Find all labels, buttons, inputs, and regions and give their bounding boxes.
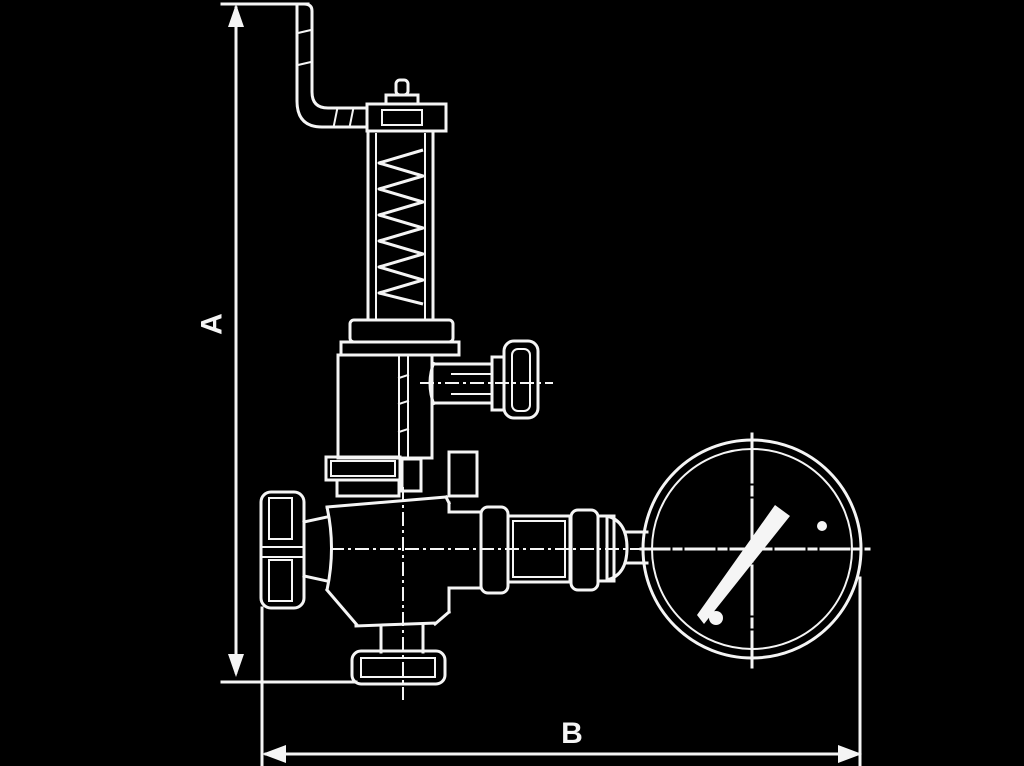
stem-tick — [399, 401, 408, 404]
handwheel-stem-bottom — [304, 576, 327, 581]
packing-flange-inner — [331, 461, 395, 476]
lever-pipe-inner-wall — [304, 4, 368, 108]
gauge-needle — [697, 505, 790, 624]
dim-a-label: A — [196, 313, 229, 335]
pipe-tick — [298, 62, 311, 65]
bonnet — [338, 355, 432, 458]
handwheel-stem-top — [304, 517, 327, 522]
dim-a-arrow-up-icon — [228, 4, 244, 27]
inlet-handwheel — [261, 492, 327, 608]
adjusting-cap — [367, 80, 446, 131]
bottom-drain-cap-inner — [361, 658, 435, 677]
stem-tick — [399, 429, 408, 432]
body-bottom-right-slope — [435, 612, 449, 624]
adjusting-cap-block — [367, 104, 446, 131]
adjusting-cap-slot — [382, 110, 422, 125]
gland-nut — [402, 459, 421, 491]
body-top-edge — [327, 497, 446, 507]
side-test-port — [420, 341, 553, 418]
dim-b-arrow-right-icon — [838, 745, 862, 763]
pressure-gauge — [641, 434, 869, 667]
dim-b-label: B — [561, 717, 583, 750]
pipe-tick — [334, 110, 337, 125]
packing-step — [337, 480, 399, 496]
adjusting-screw-tip — [396, 80, 408, 95]
housing-bottom-flange — [350, 320, 453, 342]
outlet-upper-boss — [449, 452, 477, 496]
port-cap — [504, 341, 538, 418]
lever-pipe — [297, 4, 368, 127]
pipe-tick — [350, 110, 353, 125]
dimension-a: A — [196, 4, 357, 682]
valve-body — [327, 487, 640, 700]
handwheel-spoke-bottom — [269, 560, 292, 601]
bonnet-top-step — [341, 342, 459, 355]
coil-spring — [379, 150, 423, 304]
stem-tick — [399, 375, 408, 378]
dim-a-arrow-down-icon — [228, 654, 244, 677]
diagram-canvas: A B — [0, 0, 1024, 766]
valve-diagram: A B — [0, 0, 1024, 766]
gauge-pivot-dot — [709, 611, 723, 625]
bottom-drain-cap — [352, 651, 445, 684]
spring-housing — [341, 131, 459, 355]
pipe-tick — [298, 30, 311, 33]
bonnet-body — [338, 355, 432, 458]
body-bottom-left-slope — [327, 590, 357, 625]
gauge-stop-pin-dot — [817, 521, 827, 531]
dim-b-arrow-left-icon — [262, 745, 286, 763]
handwheel-rim — [261, 492, 304, 608]
port-cap-inner — [512, 349, 530, 411]
handwheel-spoke-top — [269, 498, 292, 539]
